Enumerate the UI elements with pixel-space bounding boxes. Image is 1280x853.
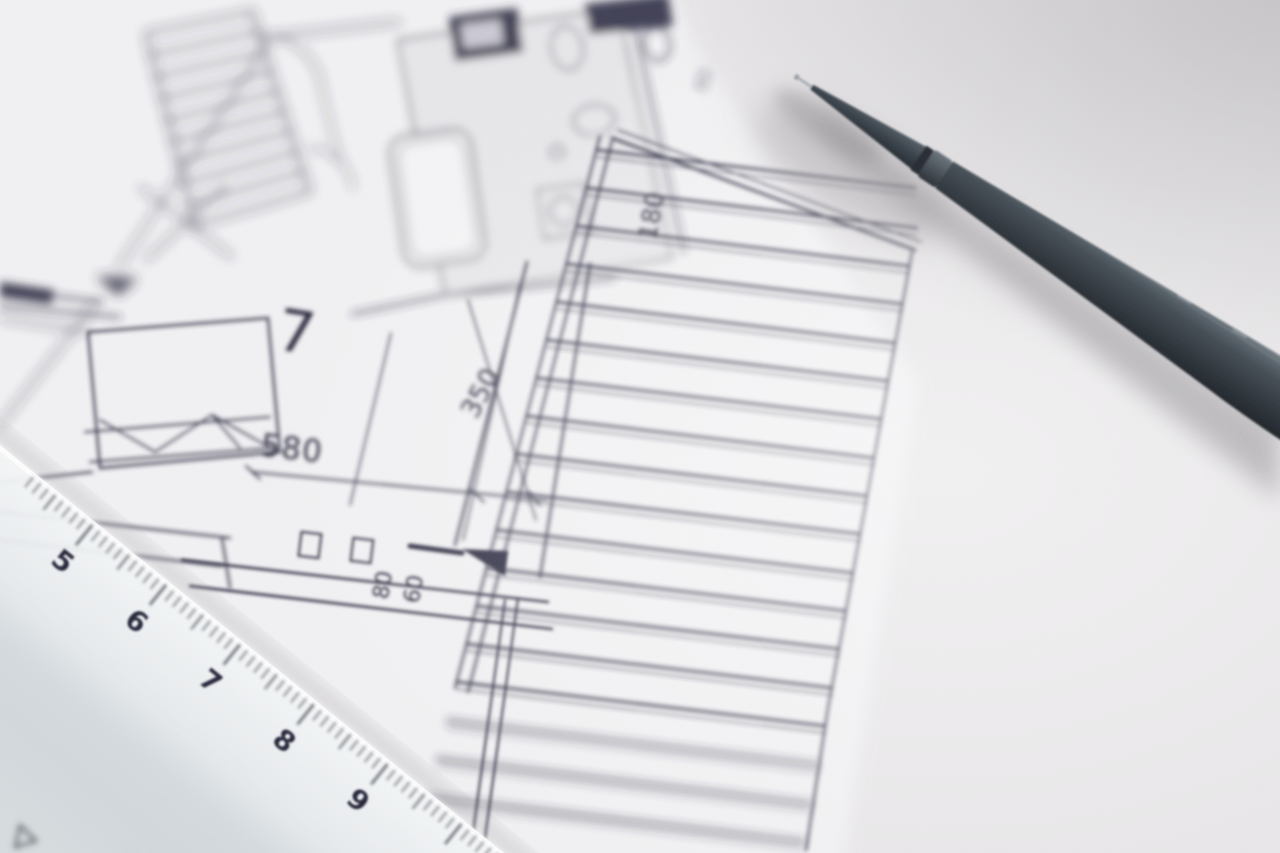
scene-canvas: 80 7 580 350 [0, 0, 1280, 853]
photo-scene: 80 7 580 350 [0, 0, 1280, 853]
paper-grain [0, 0, 1280, 853]
